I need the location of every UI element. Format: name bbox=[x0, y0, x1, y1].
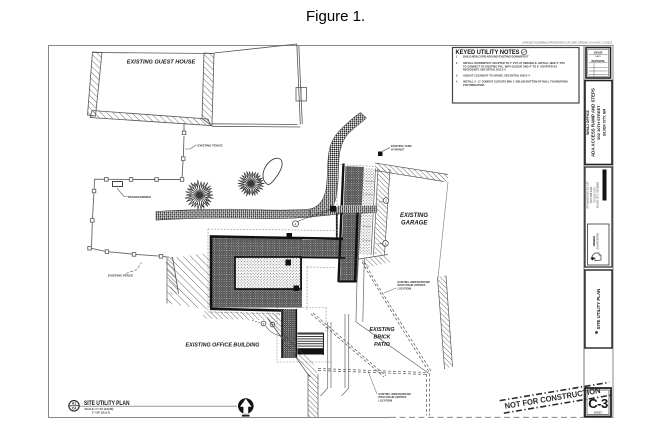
svg-text:WH&J OFFICE: WH&J OFFICE bbox=[586, 110, 590, 135]
svg-text:PATIO: PATIO bbox=[374, 342, 390, 348]
svg-text:Figure 1.: Figure 1. bbox=[306, 8, 365, 25]
svg-text:A1: A1 bbox=[72, 402, 76, 406]
svg-text:TRANSFORMER: TRANSFORMER bbox=[128, 195, 152, 199]
svg-text:EXISTING FENCE: EXISTING FENCE bbox=[198, 144, 223, 148]
svg-text:SITE UTILITY PLAN: SITE UTILITY PLAN bbox=[596, 289, 601, 330]
svg-text:BRICK: BRICK bbox=[373, 335, 391, 341]
svg-text:ENGINEERING: ENGINEERING bbox=[596, 232, 599, 249]
svg-text:SITE UTILITY PLAN: SITE UTILITY PLAN bbox=[84, 400, 130, 407]
svg-text:C4: C4 bbox=[72, 407, 76, 411]
svg-text:HYDRANT: HYDRANT bbox=[391, 147, 404, 151]
svg-text:SILVER CITY, NM: SILVER CITY, NM bbox=[603, 109, 607, 137]
svg-text:REVISIONS: REVISIONS bbox=[591, 60, 604, 63]
svg-text:4: 4 bbox=[295, 222, 297, 226]
svg-text:EXISTING OFFICE BUILDING: EXISTING OFFICE BUILDING bbox=[186, 343, 261, 349]
svg-text:C:\PROJECTS\2202\WH&J OFFICE\A: C:\PROJECTS\2202\WH&J OFFICE\ACAD\C-3 UT… bbox=[522, 41, 612, 45]
svg-text:SCALE: 1"=10' (24x36): SCALE: 1"=10' (24x36) bbox=[85, 407, 114, 411]
svg-text:NECESSARY. SEE DETAIL D1/C1-: NECESSARY. SEE DETAIL D1/C1-4 bbox=[463, 68, 506, 72]
svg-text:DATE: DATE bbox=[595, 55, 601, 58]
svg-text:SILVER CITY, NM 88062: SILVER CITY, NM 88062 bbox=[597, 181, 600, 208]
svg-text:ADJUST CLEANOUT TO GRADE. SEE: ADJUST CLEANOUT TO GRADE. SEE DETAIL B3/… bbox=[463, 74, 530, 78]
svg-text:FOR IRRIGATION: FOR IRRIGATION bbox=[463, 83, 484, 87]
svg-text:EXISTING: EXISTING bbox=[400, 213, 428, 219]
svg-text:1"=20' (11x17): 1"=20' (11x17) bbox=[92, 410, 110, 414]
svg-text:10/5/22: 10/5/22 bbox=[594, 51, 603, 55]
svg-text:EXISTING FENCE: EXISTING FENCE bbox=[108, 274, 133, 278]
svg-text:1: 1 bbox=[385, 242, 387, 246]
svg-text:SHEET: SHEET bbox=[594, 411, 603, 415]
svg-text:EXISTING: EXISTING bbox=[369, 327, 395, 333]
svg-text:EXISTING GUEST HOUSE: EXISTING GUEST HOUSE bbox=[127, 60, 196, 66]
svg-text:2: 2 bbox=[385, 199, 387, 203]
svg-text:502 10TH STREET: 502 10TH STREET bbox=[596, 105, 601, 140]
svg-text:ADA ACCESS RAMP AND STEPS: ADA ACCESS RAMP AND STEPS bbox=[591, 88, 596, 157]
svg-text:GARAGE: GARAGE bbox=[401, 221, 428, 227]
svg-text:LOCATION): LOCATION) bbox=[398, 287, 412, 290]
svg-text:BUILD NEW CURB AROUND EXISTING: BUILD NEW CURB AROUND EXISTING DOWNSPOUT bbox=[463, 55, 529, 59]
svg-text:LOCATION): LOCATION) bbox=[379, 399, 393, 402]
